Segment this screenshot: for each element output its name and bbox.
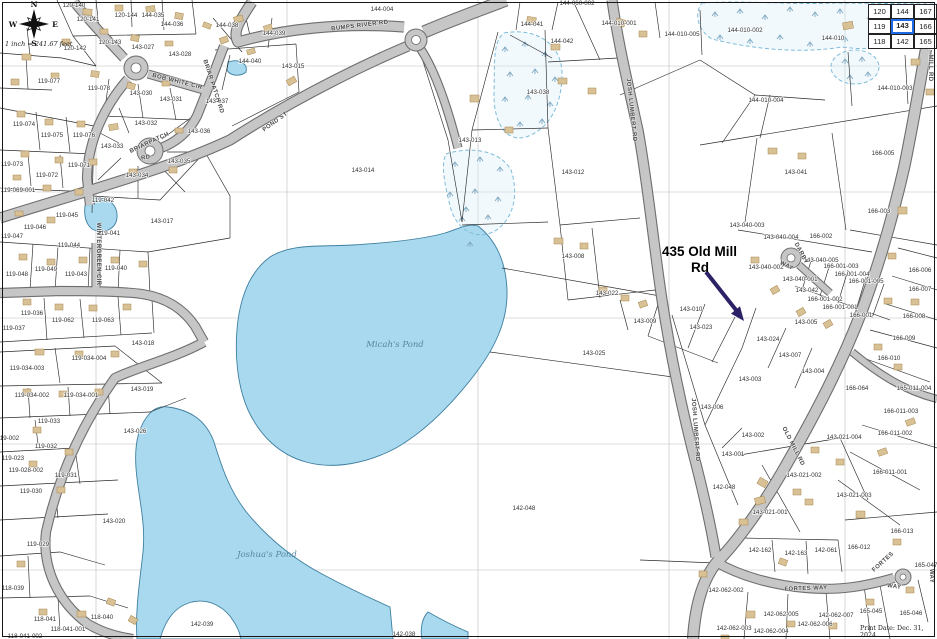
parcel-label: 166-011-001 [873,469,908,476]
old-mill-rd [693,49,926,639]
parcel-label: 119-042 [92,197,115,204]
parcel-line [55,348,60,383]
building [905,418,916,427]
parcel-label: 166-001-005 [848,278,884,285]
index-cell[interactable]: 119 [868,19,891,34]
parcel-label: 144-039 [263,30,286,37]
parcel-label: 143-018 [132,340,155,347]
parcel-label: 144-036 [161,21,184,28]
parcel-line [0,53,96,66]
building [79,257,87,263]
parcel-label: 144-010-002 [727,27,763,34]
building [580,243,588,249]
parcel-line [192,0,196,34]
parcel-label: 143-017 [151,218,174,225]
parcel-line [700,106,937,145]
parcel-label: 166-003 [868,208,891,215]
index-cell[interactable]: 166 [914,19,937,34]
parcel-label: 119-076 [73,132,96,139]
building [906,587,914,593]
parcel-label: 143-003 [739,376,762,383]
building [47,259,55,265]
road-label: MILL RD [927,54,933,81]
parcel-label: 143-027 [132,44,155,51]
parcel-label: 119-049 [35,266,58,273]
parcel-label: 166-001-002 [807,296,843,303]
parcel-line [98,132,119,143]
parcel-label: 120-141 [77,16,100,23]
road-label: WINTERGREEN CIR [95,223,101,286]
building [169,167,177,173]
parcel-line [26,57,28,89]
building [21,151,29,157]
building [77,121,85,127]
water-label: Joshua's Pond [235,550,297,560]
parcel-label: 165-011-004 [897,385,932,392]
building [836,459,844,465]
parcel-label: 166-002 [810,233,833,240]
parcel-label: 119-062 [52,317,75,324]
building [554,238,563,244]
parcel-line [44,298,47,340]
address-annotation: 435 Old Mill Rd [662,244,772,275]
building [926,89,934,95]
building [175,128,183,133]
parcel-line [36,112,40,150]
compass-main-points [19,9,49,39]
building [505,127,513,133]
parcel-label: 143-020 [103,518,126,525]
parcel-label: 119-028-002 [9,467,44,474]
parcel-label: 118-039 [2,585,25,592]
parcel-line [88,248,90,291]
road-label: WAY [887,583,902,591]
parcel-label: 144-042 [551,38,574,45]
compass-letter: N [31,0,38,9]
building [11,79,19,85]
parcel-label: 143-014 [352,167,375,174]
parcel-label: 119-030 [20,488,43,495]
parcel-line [712,317,735,362]
building [17,111,25,117]
parcel-label: 142-061 [815,547,838,554]
parcel-label: 143-010 [680,306,703,313]
building [57,487,65,493]
parcel-line [838,480,900,525]
scale-text: 1 inch = 241.67 feet [5,40,72,48]
building [91,70,100,77]
parcel-label: 119-034-003 [10,365,45,372]
parcel-line [640,560,716,563]
parcel-label: 119-029 [27,541,50,548]
building [75,189,83,195]
building [621,295,629,301]
parcel-line [806,541,808,574]
parcel-label: 144-010-001 [601,20,637,27]
parcel-label: 143-031 [160,96,183,103]
parcel-line [0,412,150,418]
building [866,599,874,605]
parcel-label: 142-048 [513,505,536,512]
parcel-line [772,540,775,572]
parcel-label: 119-040 [105,265,128,272]
index-cell[interactable]: 142 [891,34,914,49]
parcel-label: 166-009 [893,335,916,342]
parcel-label: 143-008 [562,253,585,260]
compass-letter: W [8,20,18,29]
building [126,82,135,90]
parcel-label: 143-041 [785,169,808,176]
parcel-line [832,133,846,230]
parcel-label: 119-072 [36,172,59,179]
building [202,22,211,29]
parcel-label: 143-040-001 [782,276,818,283]
building [793,489,801,495]
building [65,449,73,455]
parcel-label: 165-046 [900,610,923,617]
parcel-label: 144-040 [239,58,262,65]
building [856,511,865,518]
parcel-label: 143-023 [690,324,713,331]
parcel-label: 143-021-002 [786,472,822,479]
parcel-label: 119-048 [6,271,29,278]
building [893,539,901,545]
road-circle-island [131,63,141,73]
parcel-label: 143-025 [583,350,606,357]
parcel-label: 165-045 [860,608,883,615]
building [639,31,647,37]
parcel-label: 119-034-001 [64,392,99,399]
parcel-label: 142-062-007 [818,612,854,619]
parcel-line [119,108,129,133]
road-label: WAY [928,569,934,583]
parcel-label: 143-033 [101,143,124,150]
parcel-line [0,333,152,342]
parcel-label: 118-040 [91,614,114,621]
parcel-line [620,300,628,330]
building [558,78,567,84]
building [43,185,51,191]
building [22,54,31,60]
building [106,598,116,606]
parcel-label: 142-162 [749,547,772,554]
building [123,304,131,310]
building [911,299,919,305]
parcel-label: 166-001-001 [822,304,858,311]
parcel-label: 144-010-003 [877,85,913,92]
building [165,41,173,46]
parcel-label: 166-006 [909,267,932,274]
building [111,351,119,357]
building [286,76,297,86]
parcel-line [0,596,90,598]
parcel-line [30,244,33,290]
parcel-label: 119-046 [24,224,47,231]
parcel-label: 166-011-003 [884,408,919,415]
parcel-label: 143-013 [459,137,482,144]
index-cell[interactable]: 165 [914,34,937,49]
parcel-label: 119-069-001 [1,187,36,194]
building [130,34,139,42]
parcel-line [0,346,115,352]
parcel-label: 143-001 [722,451,745,458]
building [805,499,813,505]
parcel-label: 143-005 [795,319,818,326]
parcel-label: 119-045 [56,212,79,219]
parcel-label: 119-043 [65,271,88,278]
parcel-label: 120-144 [115,12,138,19]
index-cell[interactable]: 118 [868,34,891,49]
parcel-label: 144-010-005 [664,31,700,38]
parcel-label: 143-006 [701,404,724,411]
building [721,635,729,639]
parcel-label: 120-140 [63,2,86,9]
building [699,571,707,577]
parcel-label: 143-022 [596,290,619,297]
building [874,344,882,350]
index-cell-current[interactable]: 143 [891,19,914,34]
building [100,29,108,34]
parcel-label: 118-041-001 [51,626,86,633]
parcel-label: 119-002 [0,435,20,442]
building [115,5,123,11]
parcel-line [742,308,756,348]
parcel-label: 119-077 [38,78,61,85]
parcel-label: 118-041-002 [8,633,43,639]
parcel-label: 119-036 [21,310,44,317]
building [219,36,229,44]
parcel-label: 119-032 [35,443,58,450]
parcel-label: 143-035 [168,158,191,165]
building [894,364,902,370]
map-canvas[interactable]: 120-140120-141120-144144-035144-036120-1… [0,0,937,639]
parcel-line [80,299,84,338]
road-label: BOB WHITE CIR [152,73,204,91]
parcel-label: 119-074 [13,121,36,128]
building [588,88,596,94]
parcel-line [548,128,640,225]
parcel-line [0,88,52,90]
parcel-label: 143-030 [130,90,153,97]
parcel-line [170,88,176,120]
building [111,257,119,263]
building [898,207,907,214]
parcel-label: 143-042 [796,287,819,294]
parcel-line [205,152,230,238]
parcel-label: 142-062-002 [708,587,744,594]
building [23,299,31,305]
parcel-label: 166-008 [903,313,926,320]
parcel-label: 118-041 [34,616,57,623]
parcel-label: 120-143 [99,39,122,46]
building [811,447,819,453]
parcel-line [655,2,660,38]
building [33,427,41,433]
parcel-line [838,540,842,572]
building [638,300,648,308]
parcel-label: 166-010 [878,355,901,362]
parcel-label: 143-009 [634,318,657,325]
parcel-label: 143-034 [126,172,149,179]
map-index-grid: 120144167119143166118142165 [868,4,937,49]
building [175,12,184,19]
map-viewport[interactable]: 120-140120-141120-144144-035144-036120-1… [0,0,937,639]
parcel-line [152,300,154,333]
parcel-label: 142-062-004 [753,628,789,635]
parcel-line [0,150,94,154]
joshuas-pond-east [421,612,468,639]
parcel-label: 119-031 [55,472,78,479]
water-label: Micah's Pond [365,340,424,350]
building [757,477,768,488]
parcel-label: 119-073 [1,161,24,168]
building [55,157,63,163]
building [770,285,780,294]
parcel-line [0,238,230,252]
parcel-label: 119-034-004 [72,355,107,362]
building [15,211,23,216]
parcel-line [560,225,568,300]
building [778,558,788,566]
parcel-label: 143-021-003 [836,492,872,499]
building [89,305,97,311]
parcel-label: 144-010 [822,35,845,42]
road-circle-island [412,36,421,45]
parcel-label: 119-034-002 [15,392,50,399]
parcel-label: 143-004 [802,368,825,375]
building [884,298,892,304]
building [55,304,63,310]
address-annotation-line1: 435 Old Mill [662,244,772,260]
parcel-line [905,55,908,104]
parcel-label: 166-001 [850,312,873,319]
parcel-label: 166-064 [846,385,869,392]
parcel-label: 144-004 [371,6,394,13]
building [798,153,806,159]
parcel-label: 142-039 [191,621,214,628]
parcel-line [28,556,30,598]
building [83,9,92,16]
parcel-line [742,538,838,540]
print-date: Print Date: Dec. 31, 2024 [860,625,937,639]
parcel-label: 142-062-006 [797,621,833,628]
building [109,123,119,130]
parcel-label: 119-078 [88,85,111,92]
building [796,307,806,316]
parcel-label: 166-001-004 [834,271,870,278]
fortes-way [716,562,894,589]
parcel-label: 166-007 [909,286,932,293]
parcel-label: 166-005 [872,150,895,157]
parcel-label: 119-037 [3,325,26,332]
parcel-label: 143-007 [779,352,802,359]
parcel-label: 143-036 [188,128,211,135]
parcel-label: 142-163 [785,550,808,557]
compass-letter: E [52,20,58,29]
road-circle-island [900,574,906,580]
parcel-line [648,336,718,363]
building [768,148,777,154]
building [246,48,255,55]
parcel-line [28,154,31,186]
parcel-label: 119-033 [38,418,61,425]
parcel-label: 119-071 [68,162,91,169]
parcel-label: 143-024 [757,336,780,343]
road-circle-island [787,254,795,262]
parcel-label: 166-001-003 [823,263,859,270]
parcel-label: 142-062-005 [763,611,799,618]
parcel-label: 144-038 [216,22,239,29]
parcel-label: 143-040-004 [763,234,799,241]
building [17,561,25,567]
parcel-label: 119-063 [92,317,115,324]
parcel-label: 166-013 [891,528,914,535]
building [89,159,97,165]
parcel-label: 166-011-002 [878,430,913,437]
building [842,21,853,30]
parcel-label: 166-012 [848,544,871,551]
parcel-label: 143-021-004 [826,434,862,441]
parcel-line [148,252,150,294]
parcel-label: 144-010-004 [748,97,784,104]
parcel-line [745,138,757,222]
parcel-label: 143-026 [124,428,147,435]
index-cell[interactable]: 167 [914,4,937,19]
building [823,319,833,328]
building [19,254,27,260]
parcel-label: 143-002 [742,432,765,439]
parcel-label: 143-012 [562,169,585,176]
parcel-label: 119-047 [1,233,24,240]
building [77,611,86,617]
bumps-river-rd-ne [424,0,506,32]
parcel-label: 143-038 [527,89,550,96]
annotation-arrow [706,272,744,321]
address-annotation-line2: Rd [691,260,772,276]
parcel-line [66,117,70,152]
building [877,448,888,457]
parcel-label: 142-048 [713,484,736,491]
building [45,119,53,125]
parcel-label: 143-032 [135,120,158,127]
building [35,349,44,355]
parcel-label: 143-040-003 [729,222,765,229]
index-cell[interactable]: 120 [868,4,891,19]
parcel-label: 142-062-003 [716,625,752,632]
parcel-label: 143-015 [282,63,305,70]
parcel-line [552,2,558,30]
parcel-label: 143-028 [169,51,192,58]
parcel-label: 119-023 [2,455,25,462]
parcel-label: 142-038 [393,631,416,638]
parcel-label: 143-021-001 [752,509,788,516]
building [13,175,21,180]
parcel-line [840,438,868,500]
parcel-label: 119-075 [41,132,64,139]
parcel-line [575,5,600,60]
building [139,261,147,267]
parcel-line [502,268,660,296]
parcel-label: 144-060-002 [559,0,595,7]
parcel-line [768,328,786,368]
building [787,621,795,627]
annotation-arrow-shaft [706,272,736,310]
index-cell[interactable]: 144 [891,4,914,19]
building [470,95,479,102]
building [39,609,47,615]
building [746,611,755,618]
parcel-line [516,2,520,30]
